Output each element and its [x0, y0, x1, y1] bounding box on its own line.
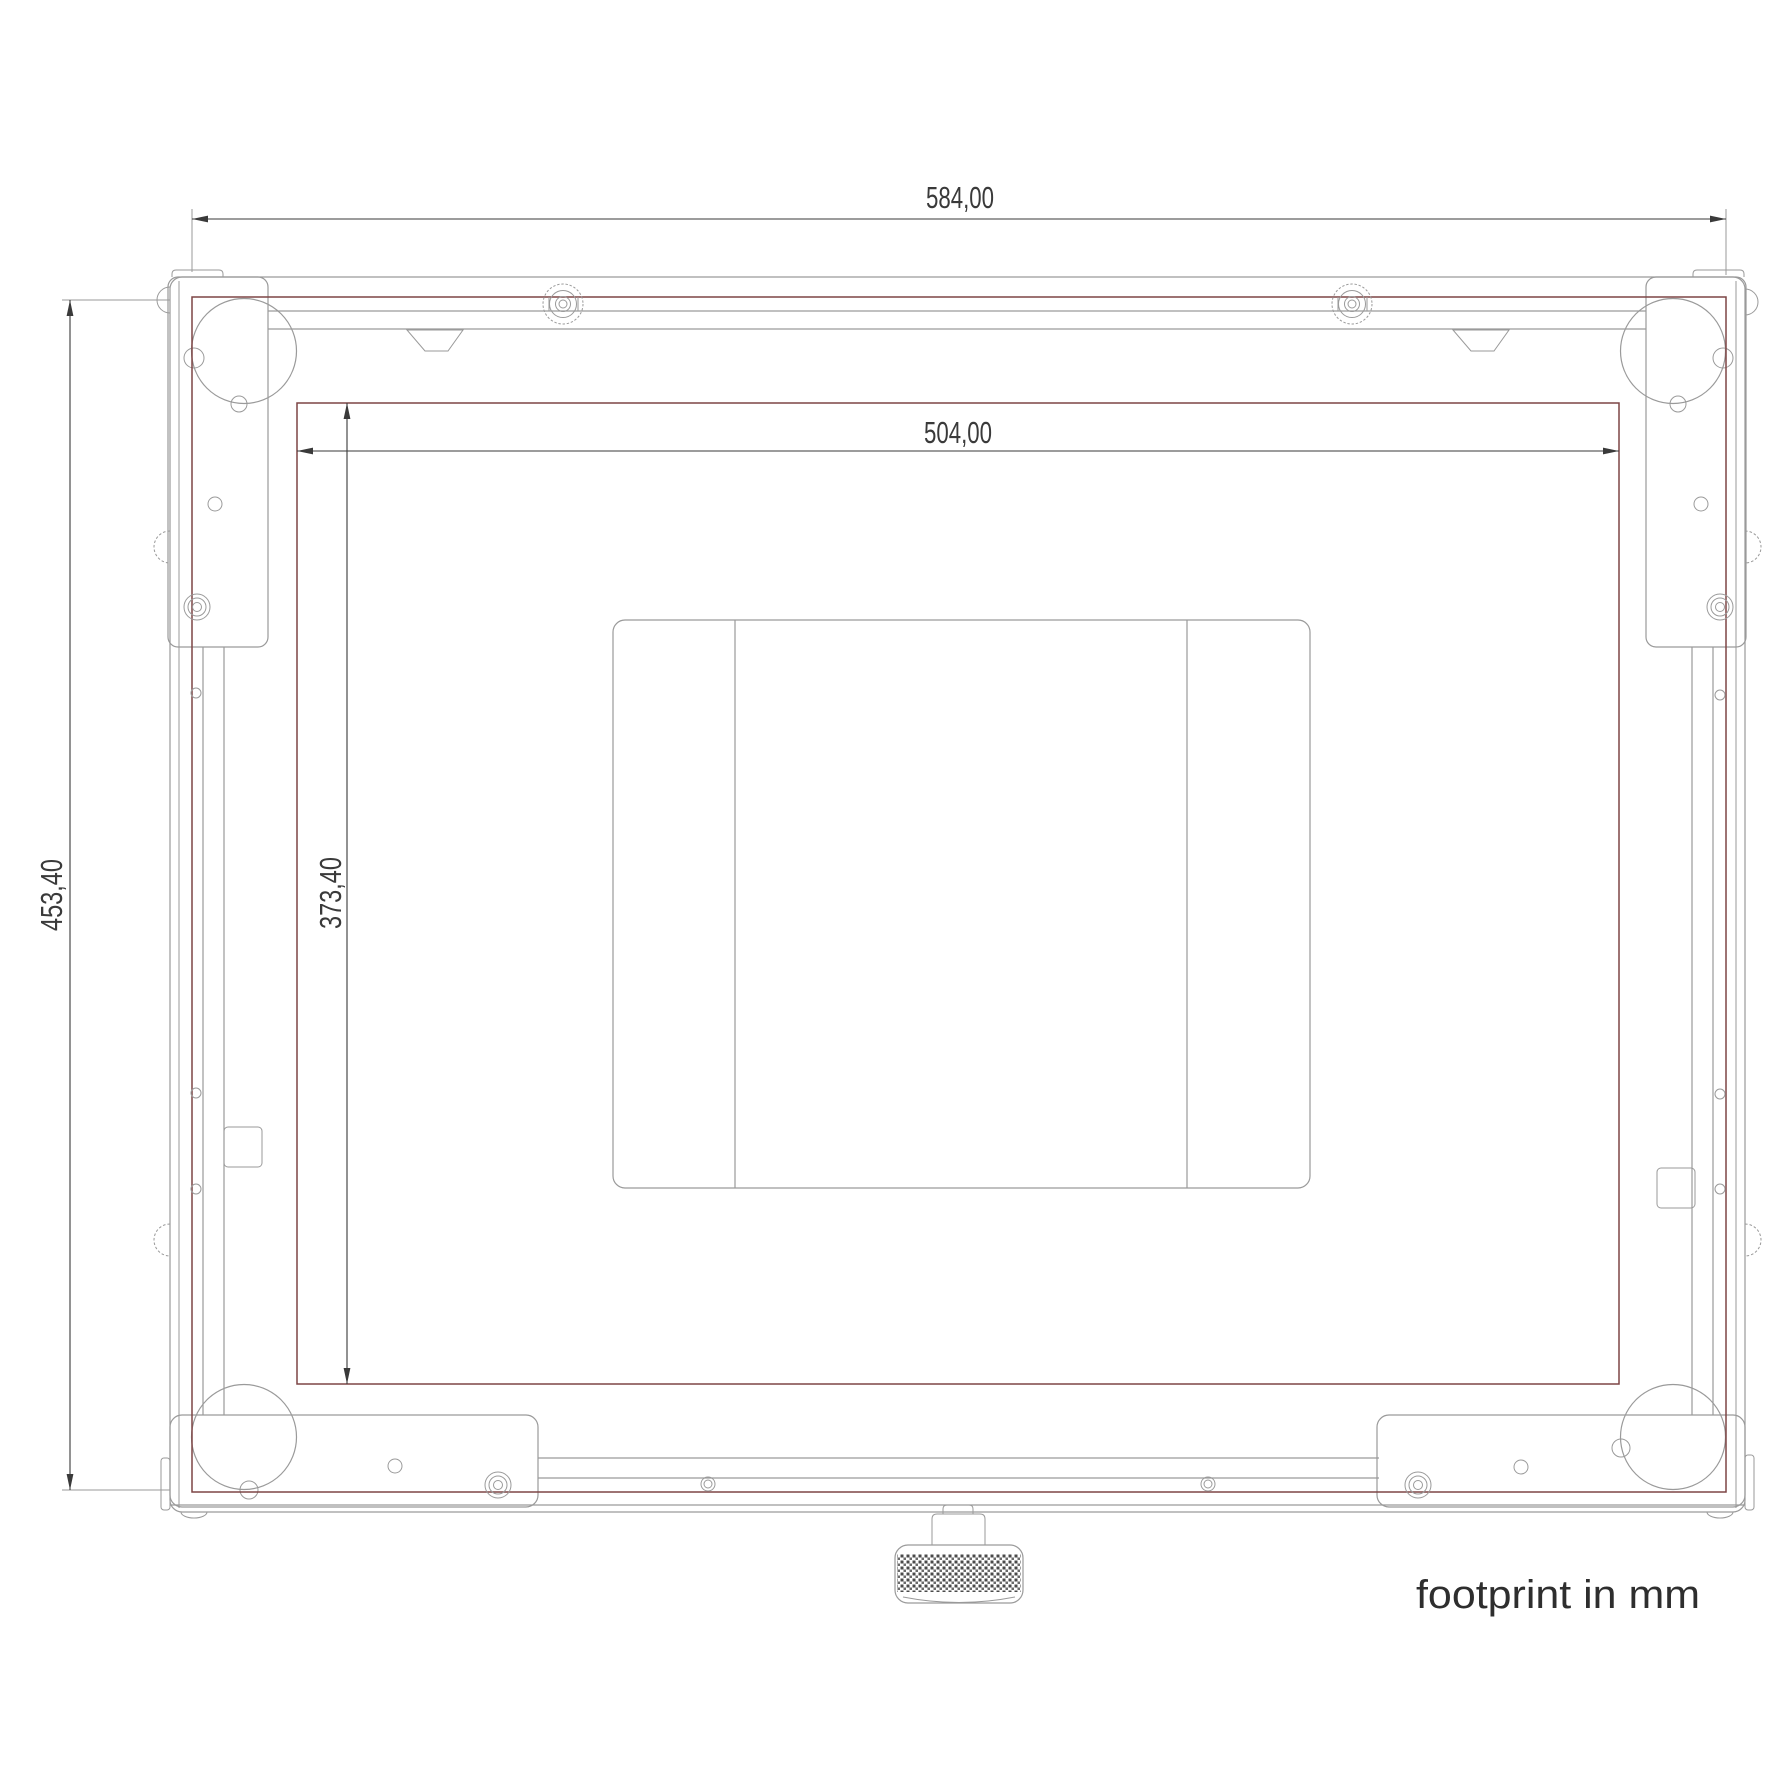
screw-bottom-right — [1405, 1472, 1431, 1498]
foot-bottom-left — [192, 1385, 297, 1490]
drawing-caption: footprint in mm — [1416, 1573, 1700, 1617]
plate-top-right — [1646, 277, 1746, 647]
right-rail-tab — [1657, 1168, 1695, 1208]
corner-feet — [184, 299, 1733, 1500]
top-left-tab — [172, 270, 223, 277]
left-lower-bump — [154, 1224, 170, 1256]
label-outer-width: 584,00 — [926, 180, 994, 215]
plate-bottom-right — [1377, 1415, 1745, 1507]
screw-top-left — [184, 594, 210, 620]
edge-bumps — [154, 287, 1761, 1518]
technical-drawing: 584,00 504,00 453,40 373,40 footprint in… — [0, 0, 1786, 1786]
right-mid-bump — [1745, 531, 1761, 563]
opening-outline — [297, 403, 1619, 1384]
top-right-tab — [1693, 270, 1744, 277]
label-inner-width: 504,00 — [924, 415, 992, 450]
dimension-outer-width — [192, 216, 1726, 223]
footprint-outline — [192, 297, 1726, 1492]
left-slot — [407, 330, 463, 351]
left-rail-tab — [224, 1127, 262, 1167]
knurl-texture — [897, 1554, 1021, 1592]
outer-frame — [170, 270, 1745, 1512]
label-inner-height: 373,40 — [313, 857, 348, 929]
right-lower-bump — [1745, 1224, 1761, 1256]
screw-bottom-left — [485, 1472, 511, 1498]
right-top-bump — [1745, 289, 1758, 315]
right-foot-pad — [1707, 1512, 1733, 1518]
dimension-extension-lines — [62, 209, 1726, 1490]
left-knurled-knob — [543, 284, 583, 324]
foot-bottom-right — [1621, 1385, 1726, 1490]
screw-top-right — [1707, 594, 1733, 620]
label-outer-height: 453,40 — [34, 859, 69, 931]
foot-top-right — [1621, 299, 1726, 404]
left-foot-pad — [181, 1512, 207, 1518]
right-slot — [1453, 330, 1509, 351]
plate-top-left — [168, 277, 268, 647]
corner-plates — [168, 277, 1746, 1507]
drawing-canvas: 584,00 504,00 453,40 373,40 footprint in… — [0, 0, 1786, 1786]
left-bottom-tab — [161, 1458, 170, 1510]
right-knurled-knob — [1332, 284, 1372, 324]
screws-and-holes — [184, 497, 1733, 1498]
foot-top-left — [192, 299, 297, 404]
center-bed — [613, 620, 1310, 1188]
top-rail-details — [407, 284, 1509, 351]
thumb-knob — [895, 1505, 1023, 1603]
right-bottom-tab — [1745, 1455, 1754, 1510]
plate-bottom-left — [170, 1415, 538, 1507]
